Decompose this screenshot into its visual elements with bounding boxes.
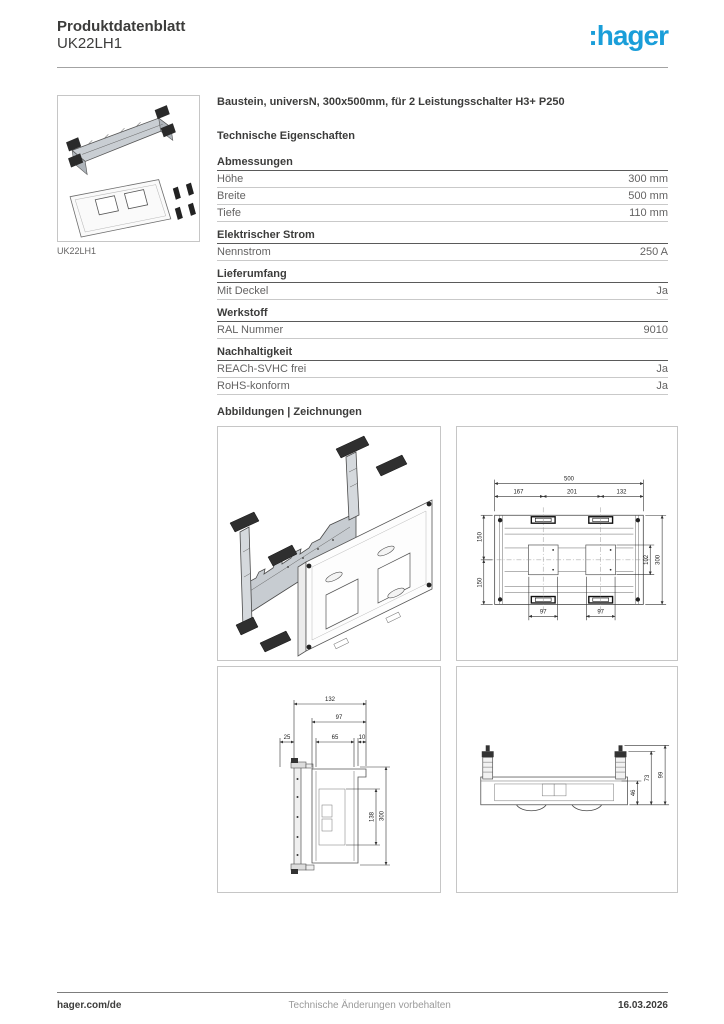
section-heading: Abmessungen xyxy=(217,156,668,171)
dim-label: 46 xyxy=(631,789,637,796)
spec-row: Tiefe 110 mm xyxy=(217,205,668,222)
spec-value: 300 mm xyxy=(628,173,668,185)
datasheet-page: Produktdatenblatt UK22LH1 :hager xyxy=(0,0,724,1024)
drawings-heading: Abbildungen | Zeichnungen xyxy=(217,406,668,419)
spec-row: Höhe 300 mm xyxy=(217,171,668,188)
footer: hager.com/de Technische Änderungen vorbe… xyxy=(57,1000,668,1011)
spec-section-nachhaltigkeit: Nachhaltigkeit REACh-SVHC frei Ja RoHS-k… xyxy=(217,346,668,395)
spec-row: Nennstrom 250 A xyxy=(217,244,668,261)
footer-date: 16.03.2026 xyxy=(618,1000,668,1011)
spec-value: 500 mm xyxy=(628,190,668,202)
product-photo xyxy=(58,96,199,239)
footer-website: hager.com/de xyxy=(57,1000,121,1011)
footer-divider xyxy=(57,992,668,993)
footer-notice: Technische Änderungen vorbehalten xyxy=(289,1000,451,1011)
product-title: Baustein, universN, 300x500mm, für 2 Lei… xyxy=(217,96,668,109)
main-content: Baustein, universN, 300x500mm, für 2 Lei… xyxy=(217,96,668,893)
spec-label: RoHS-konform xyxy=(217,380,290,392)
dim-label: 300 xyxy=(380,810,386,821)
dim-label: 97 xyxy=(540,609,547,615)
exploded-view-image xyxy=(218,427,440,660)
dim-label: 150 xyxy=(477,577,483,588)
spec-section-lieferumfang: Lieferumfang Mit Deckel Ja xyxy=(217,268,668,300)
section-heading: Nachhaltigkeit xyxy=(217,346,668,361)
spec-label: REACh-SVHC frei xyxy=(217,363,306,375)
plate-thumb xyxy=(66,105,176,174)
section-heading: Elektrischer Strom xyxy=(217,229,668,244)
dim-label: 102 xyxy=(644,555,650,565)
cover-thumb xyxy=(70,180,171,237)
spec-label: Nennstrom xyxy=(217,246,271,258)
section-heading: Lieferumfang xyxy=(217,268,668,283)
dim-label: 65 xyxy=(332,735,339,741)
spec-section-werkstoff: Werkstoff RAL Nummer 9010 xyxy=(217,307,668,339)
tech-properties-heading: Technische Eigenschaften xyxy=(217,130,668,143)
spec-value: 110 mm xyxy=(629,207,668,219)
header: Produktdatenblatt UK22LH1 xyxy=(57,18,185,52)
spec-value: Ja xyxy=(656,285,668,297)
plan-view-image: 500 167 201 132 150 150 102 xyxy=(457,427,677,660)
clips-thumb xyxy=(173,183,196,220)
dim-label: 300 xyxy=(656,554,662,565)
dim-label: 132 xyxy=(617,489,627,495)
spec-label: Mit Deckel xyxy=(217,285,268,297)
product-image-caption: UK22LH1 xyxy=(57,246,96,256)
dim-label: 73 xyxy=(645,774,651,781)
spec-label: Höhe xyxy=(217,173,243,185)
product-image-frame xyxy=(57,95,200,242)
dim-label: 201 xyxy=(567,489,578,495)
spec-value: Ja xyxy=(656,380,668,392)
drawing-side-view: 132 97 25 65 10 xyxy=(217,666,441,893)
dim-label: 167 xyxy=(513,489,523,495)
dim-label: 132 xyxy=(325,697,336,703)
drawings-grid: 500 167 201 132 150 150 102 xyxy=(217,426,678,893)
spec-row: RoHS-konform Ja xyxy=(217,378,668,395)
spec-section-abmessungen: Abmessungen Höhe 300 mm Breite 500 mm Ti… xyxy=(217,156,668,222)
spec-label: RAL Nummer xyxy=(217,324,283,336)
drawing-profile-view: 46 73 99 xyxy=(456,666,678,893)
dim-label: 99 xyxy=(659,771,665,778)
side-view-image: 132 97 25 65 10 xyxy=(218,667,440,892)
drawing-plan-view: 500 167 201 132 150 150 102 xyxy=(456,426,678,661)
hager-logo: :hager xyxy=(588,20,668,52)
dim-label: 97 xyxy=(597,609,604,615)
spec-row: Breite 500 mm xyxy=(217,188,668,205)
dim-label: 150 xyxy=(477,531,483,542)
spec-section-elektrischer-strom: Elektrischer Strom Nennstrom 250 A xyxy=(217,229,668,261)
header-divider xyxy=(57,67,668,68)
spec-row: RAL Nummer 9010 xyxy=(217,322,668,339)
spec-value: Ja xyxy=(656,363,668,375)
dim-label: 10 xyxy=(359,735,366,741)
dim-label: 500 xyxy=(564,477,575,483)
spec-value: 9010 xyxy=(644,324,668,336)
spec-label: Breite xyxy=(217,190,246,202)
dim-label: 25 xyxy=(284,735,291,741)
drawing-exploded-view xyxy=(217,426,441,661)
spec-row: Mit Deckel Ja xyxy=(217,283,668,300)
product-reference: UK22LH1 xyxy=(57,35,185,52)
spec-value: 250 A xyxy=(640,246,668,258)
profile-view-image: 46 73 99 xyxy=(457,667,677,892)
dim-label: 138 xyxy=(370,811,376,822)
section-heading: Werkstoff xyxy=(217,307,668,322)
dim-label: 97 xyxy=(336,715,343,721)
document-type: Produktdatenblatt xyxy=(57,18,185,35)
spec-label: Tiefe xyxy=(217,207,241,219)
spec-row: REACh-SVHC frei Ja xyxy=(217,361,668,378)
